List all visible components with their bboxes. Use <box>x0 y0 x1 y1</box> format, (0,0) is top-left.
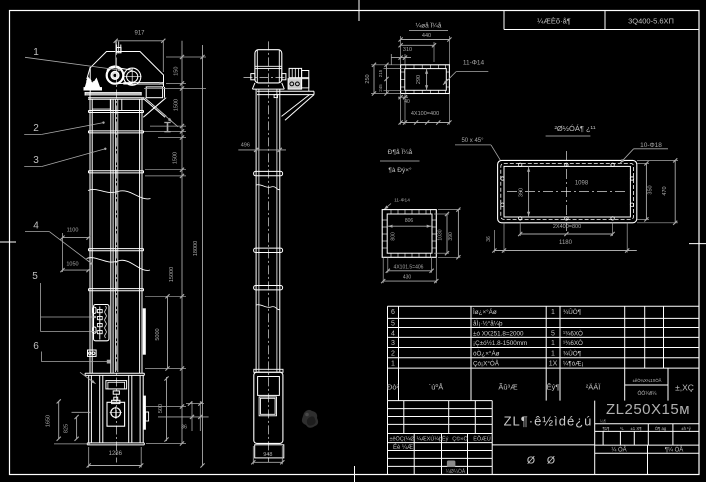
svg-text:¼ ÓÅ: ¼ ÓÅ <box>611 446 626 453</box>
svg-text:Ç©×Ö: Ç©×Ö <box>452 436 468 443</box>
svg-text:11-Φ14: 11-Φ14 <box>394 197 410 203</box>
svg-text:Ðò²: Ðò² <box>387 383 400 392</box>
svg-text:Ìø¿×°Áø: Ìø¿×°Áø <box>473 307 497 316</box>
svg-text:390: 390 <box>448 232 454 241</box>
svg-text:¶à Ðý×°: ¶à Ðý×° <box>388 166 412 174</box>
svg-text:¾ÛÒ¶: ¾ÛÒ¶ <box>563 348 582 357</box>
svg-text:36: 36 <box>181 425 187 431</box>
svg-text:470: 470 <box>662 186 668 195</box>
svg-text:290: 290 <box>416 75 422 84</box>
svg-text:¹L: ¹L <box>620 426 624 431</box>
svg-text:10-Φ18: 10-Φ18 <box>640 142 662 149</box>
svg-text:3: 3 <box>33 155 39 166</box>
svg-text:4X100=400: 4X100=400 <box>411 111 439 117</box>
svg-text:806: 806 <box>405 218 414 224</box>
svg-text:4: 4 <box>391 330 395 337</box>
svg-text:2: 2 <box>33 123 39 134</box>
svg-text:1500: 1500 <box>173 99 179 111</box>
svg-text:150: 150 <box>173 67 179 76</box>
svg-text:Çó¡X°ÓÅ: Çó¡X°ÓÅ <box>473 359 500 368</box>
svg-text:5: 5 <box>551 330 555 337</box>
svg-text:Éè ¼Æ: Éè ¼Æ <box>393 444 413 451</box>
svg-text:1: 1 <box>551 350 555 357</box>
svg-text:11-Φ14: 11-Φ14 <box>463 60 485 67</box>
svg-text:Ãû³Æ: Ãû³Æ <box>498 383 518 392</box>
svg-text:¼Ø¼ÒÅ: ¼Ø¼ÒÅ <box>446 468 466 475</box>
svg-text:1050: 1050 <box>66 262 78 268</box>
svg-text:36: 36 <box>486 236 492 242</box>
svg-text:±,XÇ: ±,XÇ <box>675 383 694 393</box>
svg-text:¹¾6XÒ: ¹¾6XÒ <box>563 338 583 347</box>
svg-text:1: 1 <box>391 361 395 368</box>
svg-text:¼ÆXÚ¼þÊý: ¼ÆXÚ¼þÊý <box>417 435 449 443</box>
svg-text:åÌ¡·½°å¼þ: åÌ¡·½°å¼þ <box>473 318 503 327</box>
svg-text:²ÄÁÏ: ²ÄÁÏ <box>586 383 602 392</box>
svg-text:±ó XX251.8=2000: ±ó XX251.8=2000 <box>473 330 524 337</box>
svg-text:1: 1 <box>33 47 39 58</box>
svg-text:430: 430 <box>403 274 412 280</box>
svg-text:1286: 1286 <box>109 451 123 457</box>
svg-text:¼øå Ï¼å: ¼øå Ï¼å <box>416 22 442 30</box>
svg-text:5: 5 <box>391 320 395 327</box>
svg-text:1100: 1100 <box>67 228 79 234</box>
svg-text:1030: 1030 <box>438 229 444 240</box>
svg-text:350: 350 <box>648 185 654 194</box>
svg-text:¡Ç±ó½1.8-1500mm: ¡Ç±ó½1.8-1500mm <box>473 339 527 347</box>
svg-text:±h ¹ý: ±h ¹ý <box>681 426 691 431</box>
svg-text:2: 2 <box>391 350 395 357</box>
svg-text:3Q400-5.6XΠ: 3Q400-5.6XΠ <box>628 17 674 26</box>
svg-text:1180: 1180 <box>559 240 573 246</box>
svg-text:496: 496 <box>241 143 250 149</box>
svg-text:1: 1 <box>551 309 555 316</box>
svg-text:390: 390 <box>518 188 524 197</box>
svg-text:50 x 45°: 50 x 45° <box>461 138 484 144</box>
svg-text:4: 4 <box>33 221 39 232</box>
svg-text:Ó¶ ag: Ó¶ ag <box>655 426 667 431</box>
svg-text:Ð¶å Ï¼å: Ð¶å Ï¼å <box>388 148 413 156</box>
svg-text:3: 3 <box>391 340 395 347</box>
svg-text:825: 825 <box>64 424 70 433</box>
svg-text:6: 6 <box>391 309 395 316</box>
svg-text:¹¾6XÒ: ¹¾6XÒ <box>563 328 583 337</box>
svg-text:250: 250 <box>365 74 371 83</box>
svg-text:1500: 1500 <box>173 152 179 164</box>
svg-text:¾ÛÒ¶: ¾ÛÒ¶ <box>563 307 582 316</box>
svg-text:Ø: Ø <box>547 455 555 467</box>
svg-text:´úºÅ: ´úºÅ <box>429 383 443 392</box>
svg-text:500: 500 <box>158 404 164 413</box>
svg-text:ÈÕÆÚ: ÈÕÆÚ <box>473 436 490 443</box>
svg-text:ÓÓ¼ñ¼: ÓÓ¼ñ¼ <box>638 390 658 397</box>
svg-text:±êÒ¼X¼1XÒÅ: ±êÒ¼X¼1XÒÅ <box>633 378 662 383</box>
svg-text:5: 5 <box>32 271 38 282</box>
svg-text:245: 245 <box>378 84 383 92</box>
svg-text:ZL250X15м: ZL250X15м <box>606 401 690 418</box>
svg-text:1650: 1650 <box>46 415 52 427</box>
svg-text:1098: 1098 <box>575 181 589 187</box>
svg-text:±êÖÇ(¼Ø: ±êÖÇ(¼Ø <box>389 436 415 443</box>
svg-text:ZL¶·ê½ìdé¿ú: ZL¶·ê½ìdé¿ú <box>504 414 593 429</box>
svg-text:948: 948 <box>263 452 272 458</box>
svg-text:5000: 5000 <box>155 328 161 340</box>
svg-text:800: 800 <box>390 232 396 241</box>
svg-text:¼ÆÈõ·å¶: ¼ÆÈõ·å¶ <box>537 17 571 26</box>
svg-text:¼¶óÆ¡: ¼¶óÆ¡ <box>563 361 584 368</box>
svg-text:2X400=800: 2X400=800 <box>553 224 581 230</box>
svg-text:Ø: Ø <box>527 455 535 467</box>
svg-text:4X101.5=406: 4X101.5=406 <box>394 265 424 271</box>
svg-text:310: 310 <box>403 47 412 53</box>
svg-text:215: 215 <box>378 69 383 77</box>
svg-text:1: 1 <box>551 340 555 347</box>
svg-text:15000: 15000 <box>169 267 175 282</box>
svg-text:¶¼ ÓÅ: ¶¼ ÓÅ <box>665 446 684 453</box>
svg-text:917: 917 <box>134 30 145 36</box>
svg-text:6: 6 <box>33 341 39 352</box>
svg-text:±1 X¶: ±1 X¶ <box>630 426 642 431</box>
svg-text:óÒ¿×°Áø: óÒ¿×°Áø <box>473 348 500 357</box>
svg-text:18000: 18000 <box>193 241 199 256</box>
svg-text:¶1¶: ¶1¶ <box>602 426 610 431</box>
svg-text:1X: 1X <box>549 361 558 368</box>
svg-text:Êý¶: Êý¶ <box>547 383 560 392</box>
svg-text:440: 440 <box>422 33 431 39</box>
svg-text:²Ø½ÓÁ¶ ¿¹¹: ²Ø½ÓÁ¶ ¿¹¹ <box>554 124 596 133</box>
svg-text:¼¶: ¼¶ <box>600 419 607 424</box>
